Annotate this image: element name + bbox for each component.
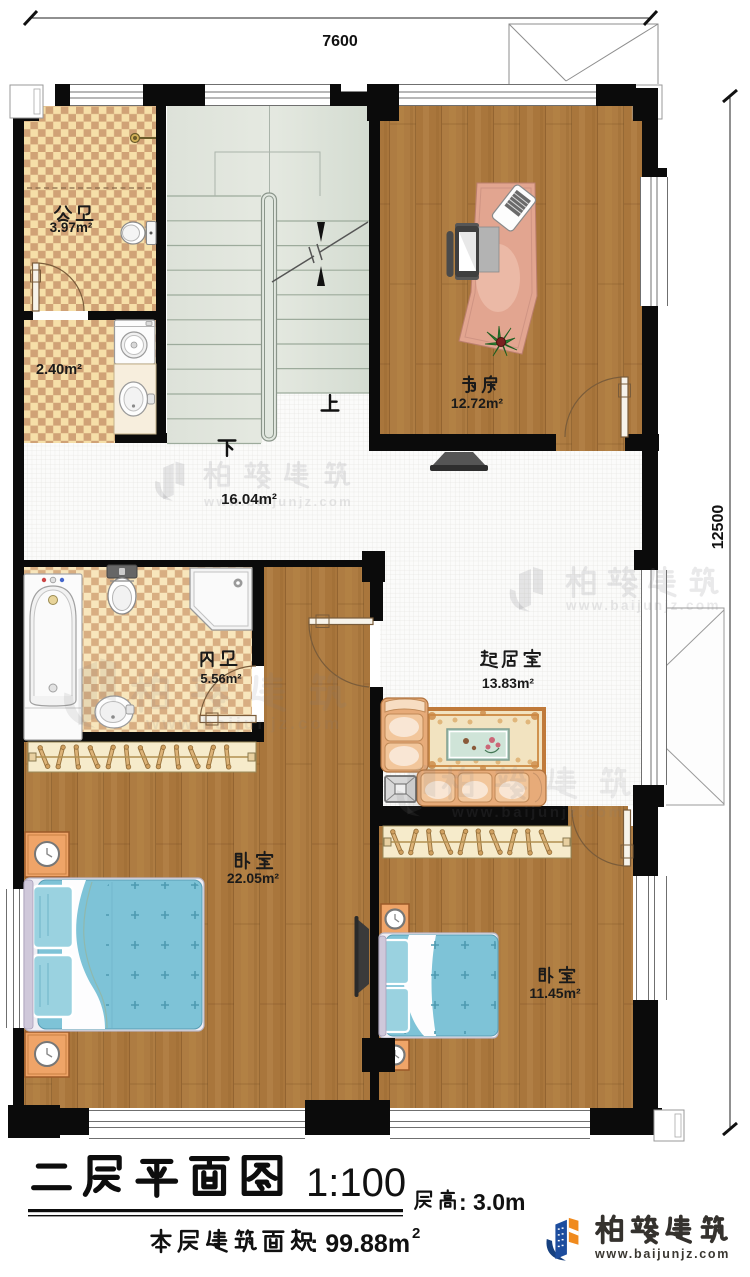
svg-text:: 99.88m: : 99.88m — [310, 1230, 410, 1258]
svg-text:11.45m²: 11.45m² — [529, 985, 581, 1001]
svg-text:3.97m²: 3.97m² — [50, 220, 93, 235]
svg-text:13.83m²: 13.83m² — [482, 675, 534, 691]
svg-text:5.56m²: 5.56m² — [200, 671, 242, 686]
svg-text:www.baijunjz.com: www.baijunjz.com — [565, 598, 721, 613]
svg-text:16.04m²: 16.04m² — [221, 491, 277, 508]
svg-text:2.40m²: 2.40m² — [36, 362, 82, 378]
svg-text:12500: 12500 — [710, 505, 727, 550]
svg-text:: 3.0m: : 3.0m — [459, 1189, 525, 1215]
svg-text:www.baijunjz.com: www.baijunjz.com — [594, 1247, 730, 1261]
svg-text:22.05m²: 22.05m² — [227, 870, 279, 886]
svg-text:1:100: 1:100 — [306, 1161, 406, 1205]
svg-text:2: 2 — [412, 1225, 420, 1242]
svg-text:12.72m²: 12.72m² — [451, 395, 503, 411]
svg-text:www.baijunjz.com: www.baijunjz.com — [451, 804, 625, 821]
svg-text:www.baijunjz.com: www.baijunjz.com — [145, 714, 342, 733]
svg-text:7600: 7600 — [322, 33, 358, 50]
